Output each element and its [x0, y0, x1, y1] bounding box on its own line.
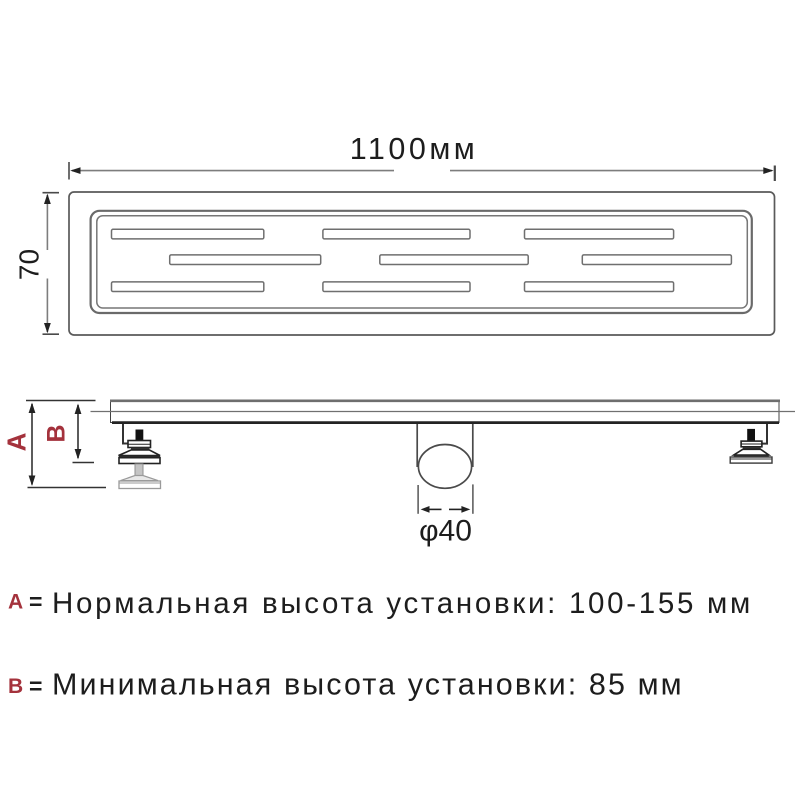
svg-text:φ40: φ40: [419, 515, 472, 548]
svg-text:A: A: [8, 591, 23, 614]
svg-text:=: =: [29, 589, 42, 615]
svg-text:70: 70: [14, 249, 45, 280]
svg-text:A: A: [2, 432, 32, 451]
svg-text:Нормальная высота установки: 1: Нормальная высота установки: 100-155 мм: [52, 587, 753, 620]
svg-text:1100мм: 1100мм: [350, 132, 479, 166]
svg-text:Минимальная высота установки:: Минимальная высота установки: 85 мм: [52, 668, 684, 702]
svg-text:B: B: [43, 424, 71, 442]
svg-text:=: =: [29, 673, 42, 699]
svg-text:В: В: [8, 675, 23, 698]
